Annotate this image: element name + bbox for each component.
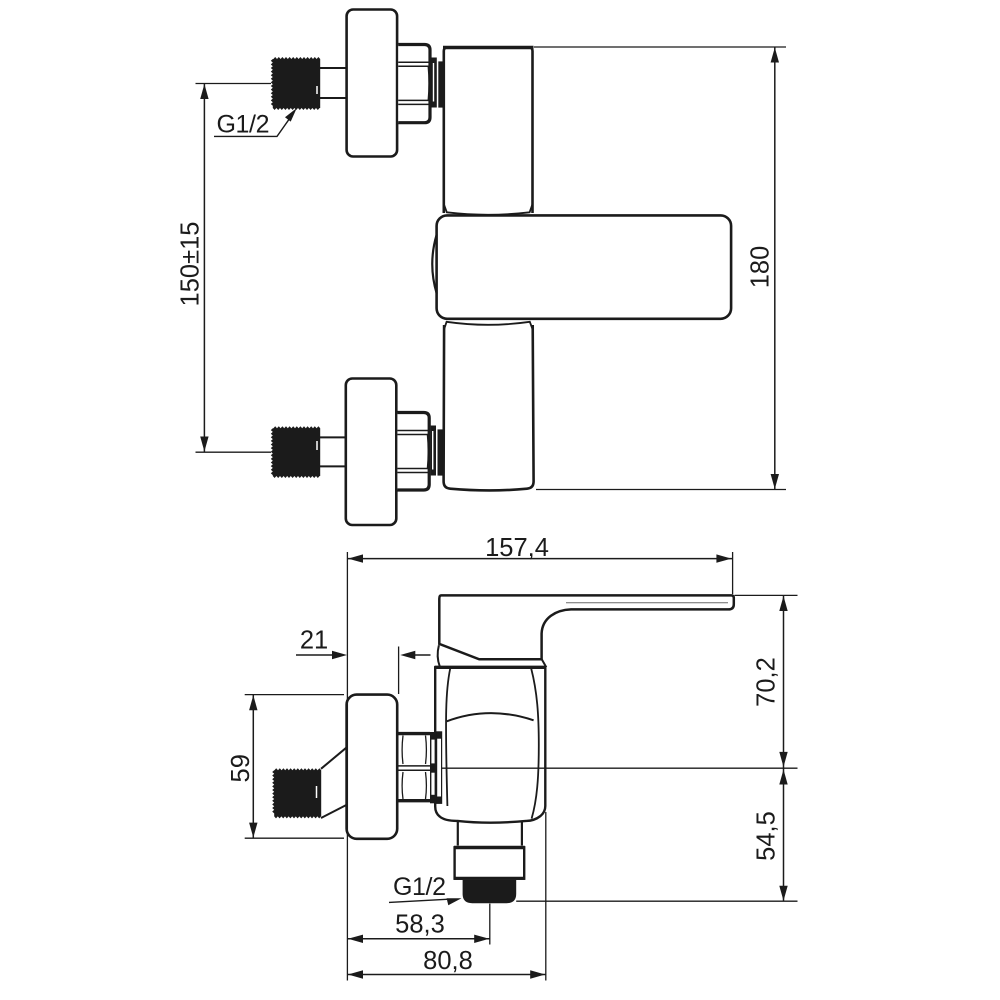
svg-text:G1/2: G1/2 bbox=[217, 111, 270, 139]
svg-text:58,3: 58,3 bbox=[395, 911, 445, 939]
svg-text:21: 21 bbox=[300, 627, 328, 655]
svg-text:70,2: 70,2 bbox=[752, 657, 780, 707]
svg-text:80,8: 80,8 bbox=[423, 947, 473, 975]
svg-text:180: 180 bbox=[747, 246, 775, 289]
svg-text:150±15: 150±15 bbox=[177, 222, 205, 307]
svg-text:157,4: 157,4 bbox=[485, 534, 549, 562]
svg-text:59: 59 bbox=[227, 754, 255, 782]
svg-text:G1/2: G1/2 bbox=[393, 873, 446, 901]
svg-text:54,5: 54,5 bbox=[752, 811, 780, 861]
